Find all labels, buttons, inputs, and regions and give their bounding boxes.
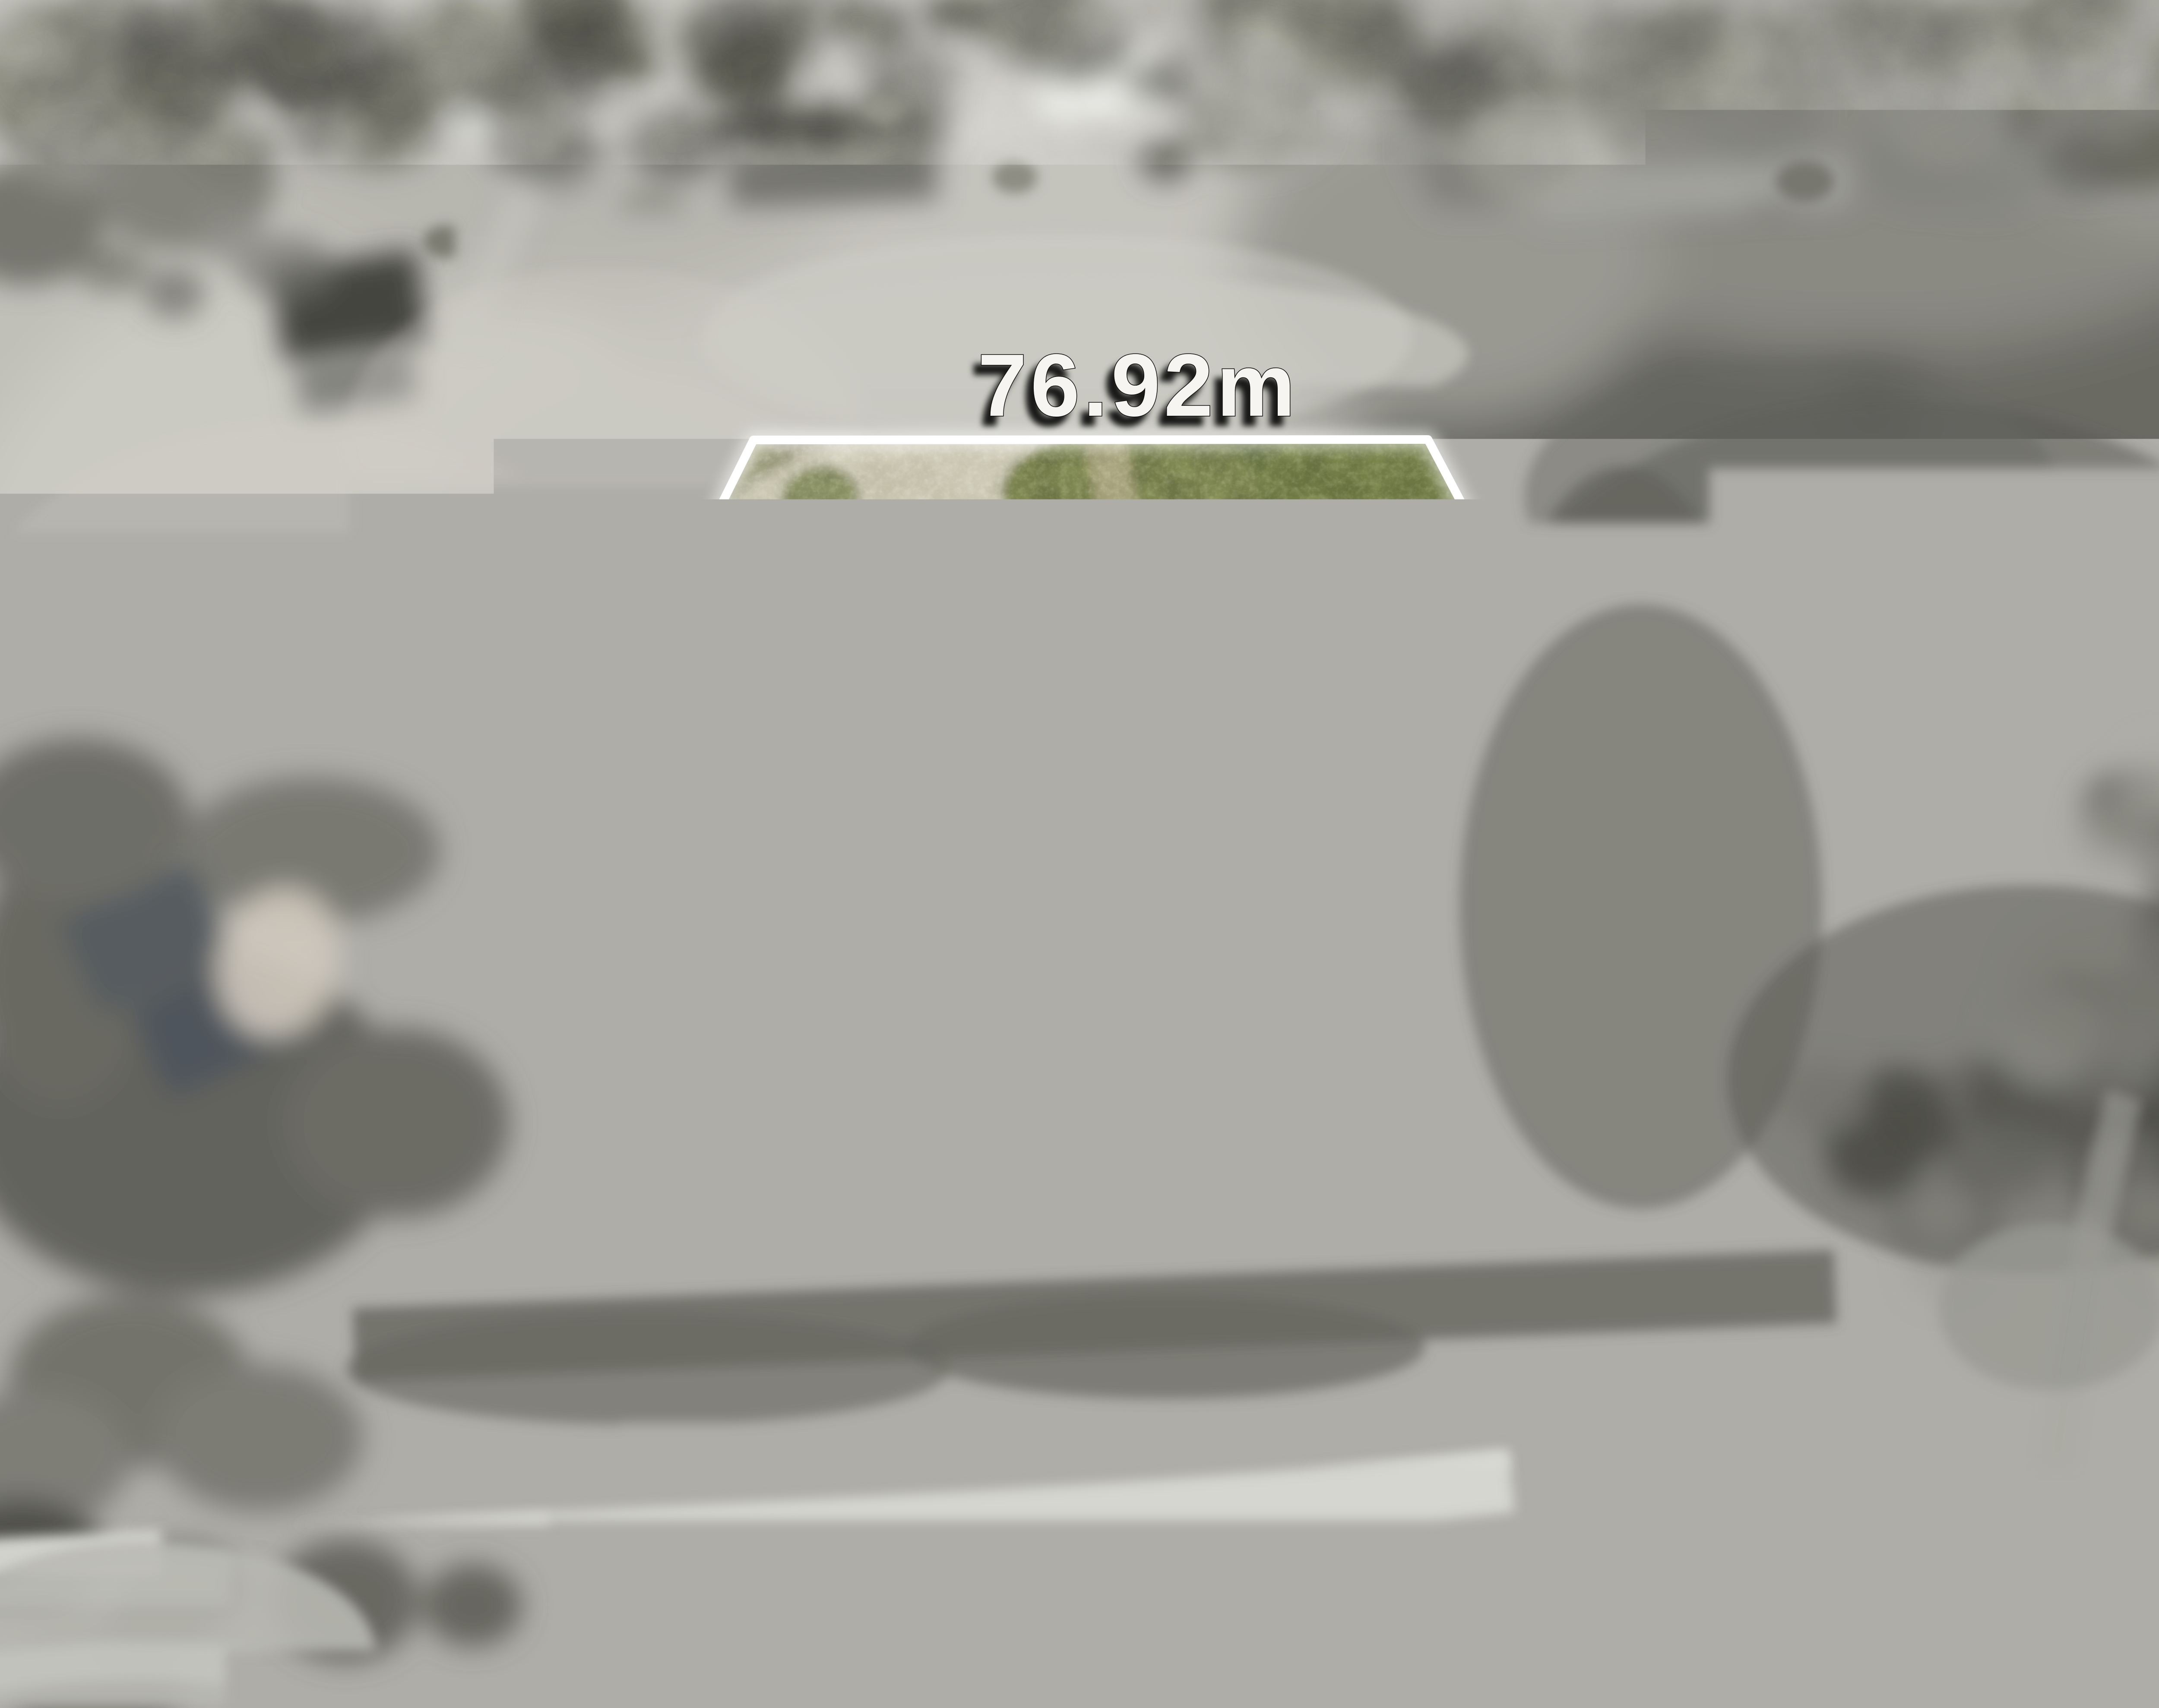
svg-text:(approx): (approx) xyxy=(886,795,1135,863)
svg-text:138.56m: 138.56m xyxy=(264,656,600,747)
svg-text:130.50m: 130.50m xyxy=(1633,668,1961,757)
svg-text:10,293m2: 10,293m2 xyxy=(900,692,1307,786)
svg-text:76.92m: 76.92m xyxy=(978,336,1298,435)
svg-text:76.50m: 76.50m xyxy=(908,1293,1237,1389)
